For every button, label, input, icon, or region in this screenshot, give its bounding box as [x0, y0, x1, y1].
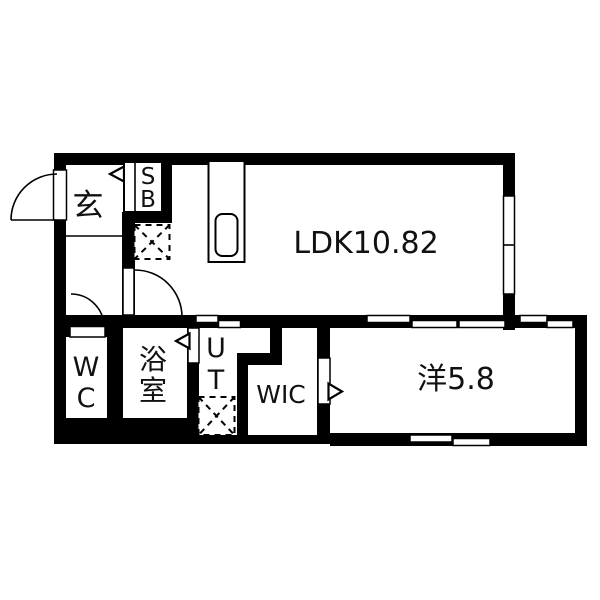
ldk-label: LDK10.82	[293, 226, 438, 261]
bedroom-label: 洋5.8	[417, 362, 495, 397]
bedroom-top-window-pane1	[520, 316, 547, 323]
wc-bath-wall	[107, 328, 123, 420]
wc-door-leaf	[70, 327, 105, 338]
bedroom-bottom-window-pane1	[410, 435, 452, 442]
hall-door-arc	[135, 270, 182, 317]
bedroom-right-wall	[575, 315, 587, 446]
entrance-label: 玄	[73, 188, 104, 224]
wic-upper-wall	[270, 328, 282, 355]
floorplan-page: LDK10.82 洋5.8 玄 S B W C 浴 室 U T WIC	[0, 0, 600, 600]
bedroom-top-window-pane2	[547, 321, 573, 328]
wic-door-triangle-icon	[329, 384, 343, 400]
shoebox-door-triangle-icon	[110, 167, 124, 182]
ldk-bedroom-sliding-pane1	[367, 316, 410, 323]
bath-label-line1: 浴	[139, 343, 167, 376]
entrance-door-arc	[11, 174, 57, 220]
ut-wic-wall	[237, 353, 248, 444]
bath-door-triangle-icon	[176, 334, 190, 349]
shoebox-label-line2: B	[140, 187, 156, 213]
bottom-middle-wall	[195, 435, 335, 444]
ldk-bedroom-sliding-pane2	[412, 321, 457, 328]
washing-machine-space-icon	[199, 397, 235, 435]
bedroom-bottom-window-pane2	[453, 439, 490, 446]
floorplan: LDK10.82 洋5.8 玄 S B W C 浴 室 U T WIC	[0, 0, 600, 600]
entrance-doorway	[54, 170, 67, 220]
bottom-left-wall	[54, 418, 199, 444]
refrigerator-space-icon	[135, 225, 170, 259]
wic-label: WIC	[256, 380, 306, 409]
utility-label-line2: T	[207, 365, 225, 396]
ldk-bedroom-sliding-pane3	[459, 321, 505, 328]
ut-sliding-door-pane1	[196, 316, 218, 323]
wc-label-line2: C	[77, 383, 96, 414]
hall-door-leaf	[123, 268, 134, 315]
bath-label-line2: 室	[139, 374, 167, 407]
utility-label-line1: U	[206, 333, 226, 364]
kitchen-sink-icon	[216, 214, 238, 256]
ut-sliding-door-pane2	[219, 321, 241, 328]
wc-label-line1: W	[73, 352, 100, 383]
